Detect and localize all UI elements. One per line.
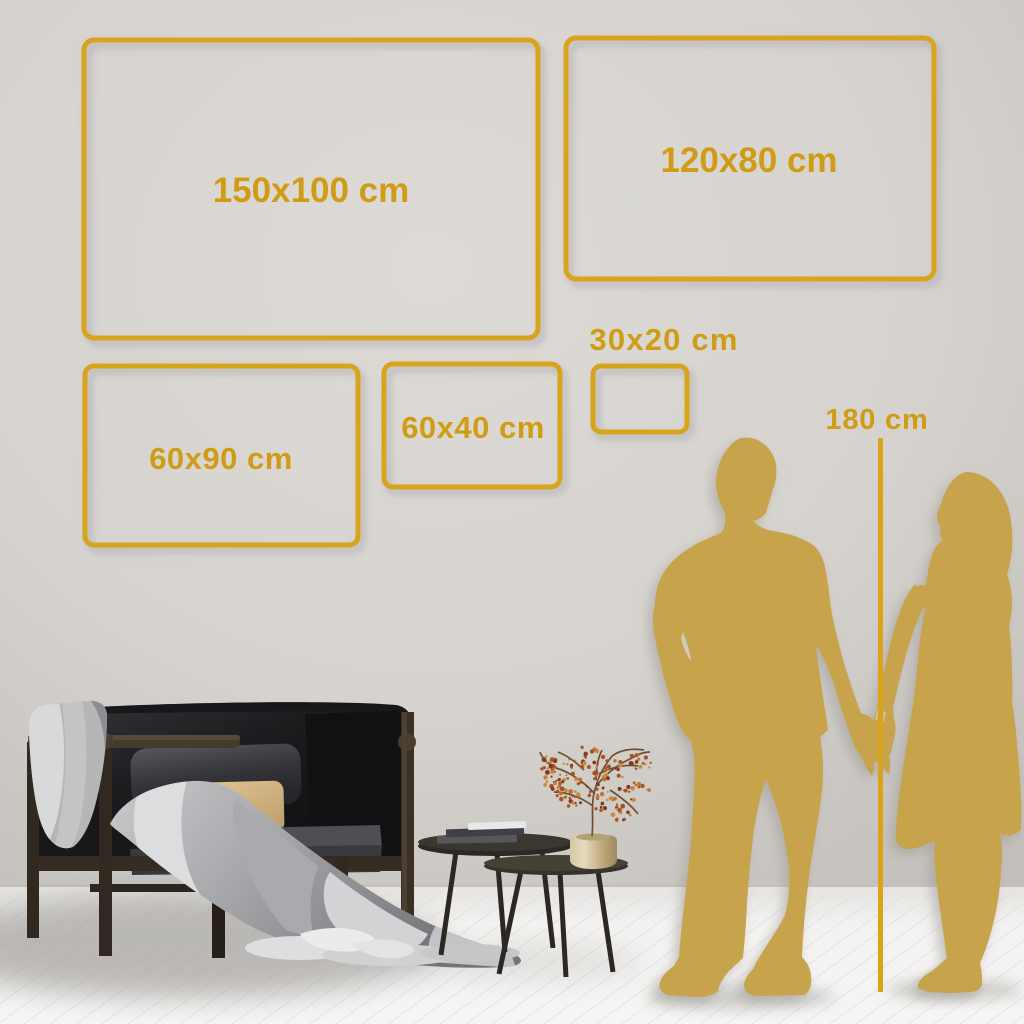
svg-text:180 cm: 180 cm — [825, 404, 928, 436]
svg-text:30x20 cm: 30x20 cm — [589, 322, 738, 357]
svg-text:60x90 cm: 60x90 cm — [149, 441, 293, 476]
svg-text:150x100 cm: 150x100 cm — [213, 171, 410, 210]
svg-text:60x40 cm: 60x40 cm — [401, 410, 545, 445]
svg-text:120x80 cm: 120x80 cm — [660, 141, 837, 180]
